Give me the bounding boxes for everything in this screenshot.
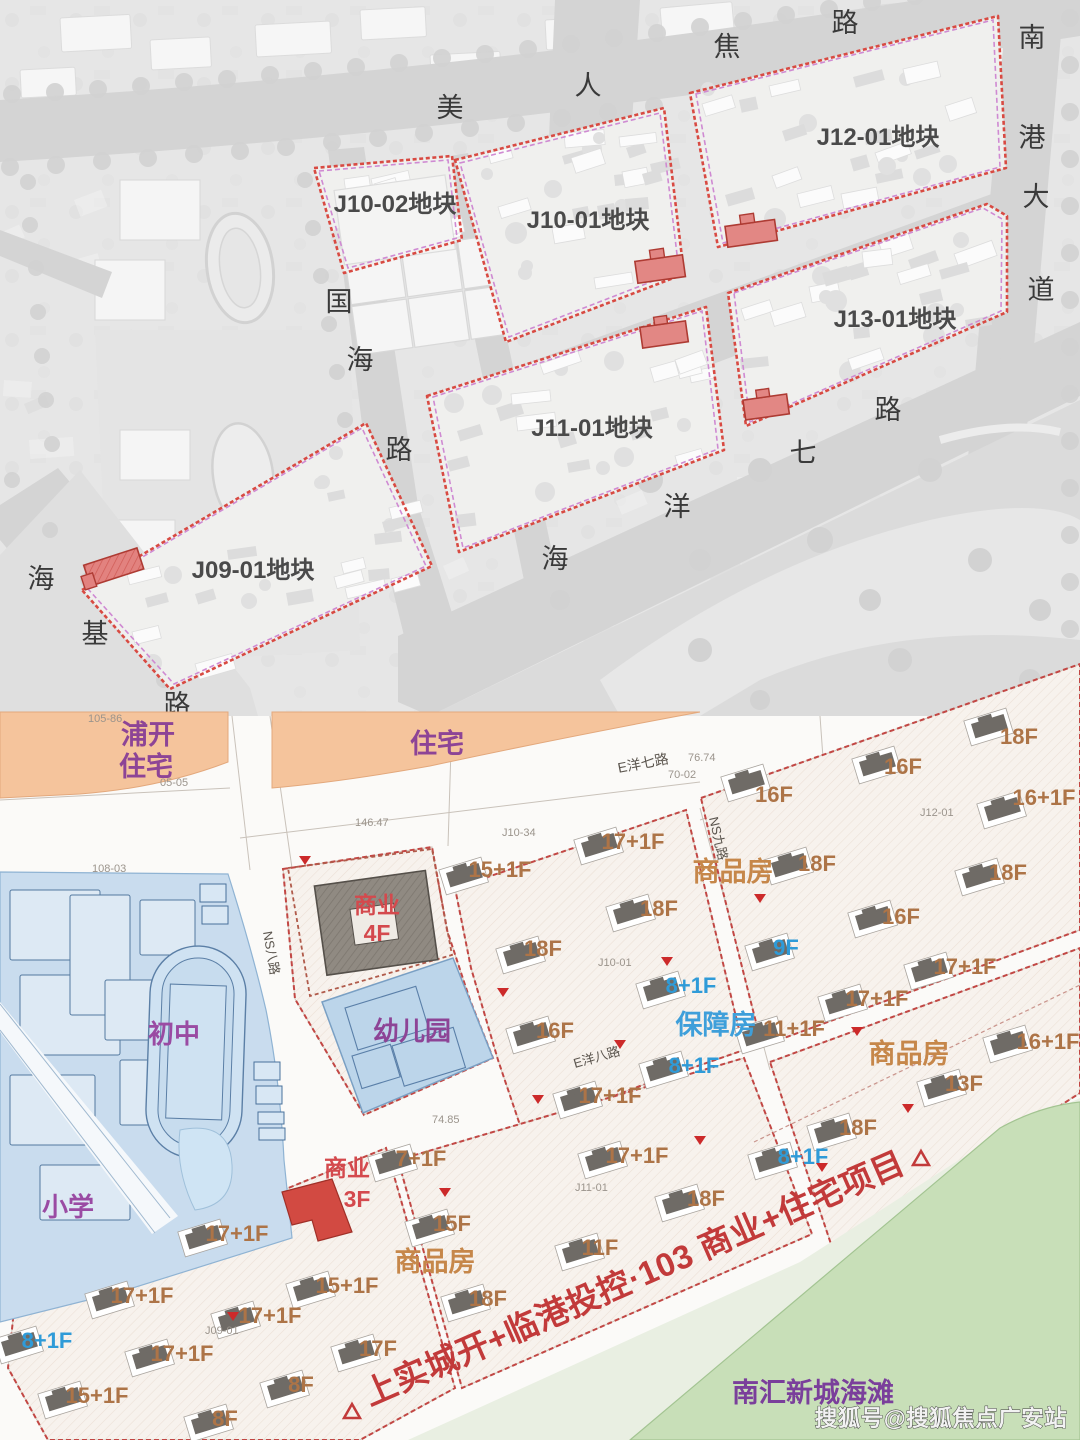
svg-text:商品房: 商品房: [869, 1039, 950, 1069]
svg-text:国: 国: [326, 287, 353, 317]
svg-text:J12-01地块: J12-01地块: [817, 124, 940, 151]
svg-text:16F: 16F: [884, 754, 922, 779]
svg-text:13F: 13F: [945, 1071, 983, 1096]
svg-text:18F: 18F: [640, 896, 678, 921]
svg-text:16F: 16F: [755, 782, 793, 807]
svg-text:商品房: 商品房: [693, 857, 774, 887]
svg-text:146.47: 146.47: [355, 817, 389, 829]
svg-text:3F: 3F: [344, 1186, 371, 1212]
svg-text:15F: 15F: [433, 1211, 471, 1236]
svg-text:洋: 洋: [664, 492, 691, 522]
svg-text:焦: 焦: [714, 32, 741, 62]
svg-text:美: 美: [437, 93, 464, 123]
svg-text:J10-01地块: J10-01地块: [527, 207, 650, 234]
svg-text:海: 海: [347, 345, 374, 375]
svg-text:幼儿园: 幼儿园: [373, 1016, 451, 1046]
svg-text:18F: 18F: [989, 860, 1027, 885]
svg-text:J13-01地块: J13-01地块: [834, 306, 957, 333]
svg-text:11F: 11F: [582, 1235, 619, 1260]
svg-text:海: 海: [542, 544, 569, 574]
svg-text:17+1F: 17+1F: [606, 1143, 669, 1168]
svg-text:初中: 初中: [148, 1019, 200, 1049]
svg-text:16F: 16F: [882, 904, 920, 929]
svg-text:70-02: 70-02: [668, 769, 696, 781]
svg-text:路: 路: [386, 435, 413, 465]
svg-text:05-05: 05-05: [160, 777, 188, 789]
svg-text:J10-34: J10-34: [502, 827, 536, 839]
svg-text:17+1F: 17+1F: [111, 1283, 174, 1308]
svg-text:18F: 18F: [524, 936, 562, 961]
svg-text:路: 路: [832, 8, 859, 38]
svg-text:8+1F: 8+1F: [22, 1328, 73, 1353]
svg-text:105-86: 105-86: [88, 713, 122, 725]
svg-text:7+1F: 7+1F: [396, 1146, 447, 1171]
svg-text:16+1F: 16+1F: [1017, 1029, 1080, 1054]
svg-text:J09-01: J09-01: [205, 1325, 239, 1337]
svg-text:17F: 17F: [359, 1336, 397, 1361]
svg-text:18F: 18F: [687, 1186, 725, 1211]
svg-text:商业: 商业: [354, 892, 400, 918]
svg-text:17+1F: 17+1F: [239, 1303, 302, 1328]
svg-text:人: 人: [575, 71, 602, 101]
svg-text:11+1F: 11+1F: [763, 1016, 825, 1041]
svg-text:15+1F: 15+1F: [469, 857, 532, 882]
svg-text:15+1F: 15+1F: [66, 1383, 129, 1408]
svg-text:8F: 8F: [212, 1406, 238, 1431]
svg-text:浦开: 浦开: [121, 719, 175, 750]
svg-text:港: 港: [1019, 123, 1046, 153]
svg-text:17+1F: 17+1F: [846, 986, 909, 1011]
svg-text:路: 路: [875, 395, 902, 425]
svg-text:搜狐号@搜狐焦点广安站: 搜狐号@搜狐焦点广安站: [815, 1405, 1067, 1431]
svg-text:大: 大: [1023, 182, 1050, 212]
svg-text:18F: 18F: [839, 1115, 877, 1140]
svg-text:南: 南: [1019, 23, 1046, 53]
svg-text:小学: 小学: [42, 1192, 94, 1222]
svg-text:商品房: 商品房: [395, 1247, 476, 1277]
svg-text:16+1F: 16+1F: [1013, 785, 1076, 810]
svg-text:8F: 8F: [288, 1372, 314, 1397]
svg-text:9F: 9F: [773, 935, 799, 960]
svg-text:18F: 18F: [798, 851, 836, 876]
svg-text:16F: 16F: [536, 1018, 574, 1043]
svg-text:17+1F: 17+1F: [934, 954, 997, 979]
svg-text:J10-02地块: J10-02地块: [334, 191, 457, 218]
svg-text:76.74: 76.74: [688, 752, 716, 764]
svg-text:J09-01地块: J09-01地块: [192, 557, 315, 584]
svg-text:南汇新城海滩: 南汇新城海滩: [732, 1377, 894, 1408]
svg-text:保障房: 保障房: [675, 1009, 757, 1040]
svg-text:J10-01: J10-01: [598, 957, 632, 969]
svg-text:8+1F: 8+1F: [666, 973, 717, 998]
svg-text:J12-01: J12-01: [920, 807, 954, 819]
svg-text:17+1F: 17+1F: [579, 1083, 642, 1108]
svg-text:18F: 18F: [469, 1286, 507, 1311]
svg-text:17+1F: 17+1F: [602, 829, 665, 854]
svg-text:道: 道: [1028, 275, 1055, 305]
svg-text:8+1F: 8+1F: [669, 1053, 720, 1078]
svg-text:J11-01: J11-01: [575, 1182, 608, 1194]
svg-text:15+1F: 15+1F: [316, 1273, 379, 1298]
svg-text:17+1F: 17+1F: [206, 1221, 269, 1246]
svg-text:商业: 商业: [324, 1155, 370, 1181]
svg-text:74.85: 74.85: [432, 1114, 460, 1126]
svg-text:住宅: 住宅: [410, 728, 464, 759]
svg-text:七: 七: [790, 438, 817, 468]
svg-text:海: 海: [28, 564, 55, 594]
svg-text:18F: 18F: [1000, 724, 1038, 749]
svg-text:108-03: 108-03: [92, 863, 126, 875]
svg-text:17+1F: 17+1F: [151, 1341, 214, 1366]
svg-text:J11-01地块: J11-01地块: [531, 415, 652, 442]
svg-text:基: 基: [82, 619, 109, 649]
svg-text:4F: 4F: [364, 920, 391, 946]
